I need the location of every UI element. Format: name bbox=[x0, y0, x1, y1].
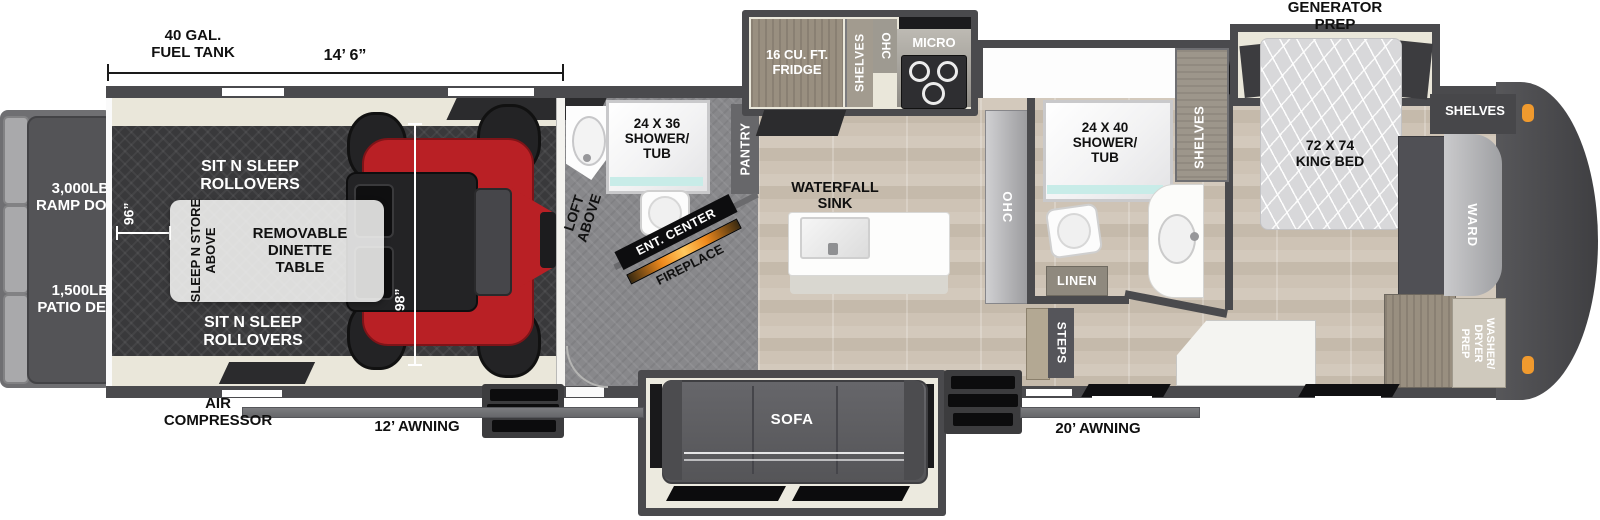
step bbox=[951, 376, 1015, 389]
loft-above-label: LOFT ABOVE bbox=[558, 180, 606, 252]
window bbox=[222, 88, 284, 96]
dimension-tick-left bbox=[107, 64, 109, 81]
garage-width-dimension-line bbox=[117, 232, 171, 234]
shower-glass bbox=[1047, 185, 1163, 194]
garage-height-label: 98” bbox=[388, 278, 412, 322]
range-hood-icon bbox=[899, 17, 971, 29]
kitchen-ohc: OHC bbox=[873, 19, 897, 73]
fuel-tank-label: 40 GAL. FUEL TANK bbox=[118, 28, 268, 62]
burner-icon bbox=[937, 61, 958, 82]
step bbox=[490, 389, 558, 401]
garage-height-dimension-line bbox=[414, 124, 416, 366]
sofa bbox=[662, 380, 928, 484]
sofa-back-line bbox=[684, 452, 904, 454]
wardrobe-label: WARD bbox=[1452, 190, 1492, 260]
window bbox=[1026, 389, 1072, 396]
faucet-icon bbox=[828, 243, 838, 255]
step bbox=[948, 394, 1018, 407]
bath-shelves-label: SHELVES bbox=[1175, 96, 1225, 178]
sofa-armrest bbox=[904, 380, 924, 480]
kitchen-shelves: SHELVES bbox=[845, 19, 873, 107]
faucet-icon bbox=[1190, 232, 1199, 241]
refrigerator: 16 CU. FT. FRIDGE bbox=[751, 19, 843, 107]
bedroom-dresser bbox=[1398, 136, 1450, 296]
kitchen-bath-wall bbox=[1027, 98, 1035, 304]
ramp-door-panel bbox=[27, 116, 114, 384]
awning-20ft bbox=[1020, 407, 1200, 418]
shower-24x36-label: 24 X 36 SHOWER/ TUB bbox=[612, 116, 702, 161]
sleep-n-store-label: SLEEP N STORE ABOVE bbox=[176, 203, 232, 299]
linen-cabinet: LINEN bbox=[1046, 266, 1108, 296]
garage-width-label: 96” bbox=[118, 198, 140, 230]
window bbox=[448, 88, 534, 96]
patio-rail-2 bbox=[3, 205, 29, 294]
floor-mat bbox=[666, 486, 786, 501]
dimension-tick bbox=[408, 123, 422, 125]
utv-bumper bbox=[540, 212, 556, 268]
window-sill bbox=[1315, 396, 1381, 401]
air-compressor-label: AIR COMPRESSOR bbox=[128, 396, 308, 430]
generator-prep-label: GENERATOR PREP bbox=[1260, 0, 1410, 34]
entry-steps bbox=[944, 370, 1022, 434]
removable-dinette-label: REMOVABLE DINETTE TABLE bbox=[232, 226, 368, 276]
sofa-back-line bbox=[684, 459, 904, 461]
entry-door-opening bbox=[566, 387, 604, 397]
marker-light-icon bbox=[1522, 356, 1534, 374]
bath-bottom-wall bbox=[1033, 296, 1129, 304]
shower-glass bbox=[610, 177, 703, 186]
washer-dryer-closet bbox=[1384, 294, 1456, 388]
microwave-label: MICRO bbox=[897, 36, 971, 51]
shower-24x40-label: 24 X 40 SHOWER/ TUB bbox=[1050, 120, 1160, 165]
ohc-counter: OHC bbox=[985, 110, 1029, 304]
sit-n-sleep-bottom-label: SIT N SLEEP ROLLOVERS bbox=[183, 314, 323, 350]
rv-floorplan: 40 GAL. FUEL TANK 14’ 6” 3,000LB. RAMP D… bbox=[0, 0, 1600, 520]
toilet-bowl-icon bbox=[1057, 213, 1091, 249]
washer-dryer-prep-label: WASHER/ DRYER PREP bbox=[1452, 302, 1504, 384]
pantry: PANTRY bbox=[731, 104, 759, 194]
king-bed-label: 72 X 74 KING BED bbox=[1270, 138, 1390, 169]
length-dimension-line bbox=[108, 72, 564, 74]
dimension-tick-right bbox=[562, 64, 564, 81]
roof-vent-icon bbox=[219, 362, 315, 384]
length-label: 14’ 6” bbox=[300, 47, 390, 65]
utv-windshield bbox=[474, 188, 512, 296]
sofa-armrest bbox=[662, 380, 682, 480]
steps: STEPS bbox=[1048, 308, 1074, 378]
dimension-tick bbox=[408, 364, 422, 366]
awning-12ft-label: 12’ AWNING bbox=[337, 419, 497, 436]
waterfall-sink-label: WATERFALL SINK bbox=[775, 180, 895, 212]
rear-opening bbox=[106, 98, 112, 386]
faucet-icon bbox=[583, 154, 591, 162]
fridge-doors bbox=[756, 110, 846, 136]
floor-mat bbox=[792, 486, 910, 501]
step bbox=[492, 420, 556, 432]
window-sill bbox=[1092, 396, 1152, 401]
slide-window bbox=[650, 384, 662, 468]
burner-icon bbox=[909, 61, 930, 82]
awning-20ft-label: 20’ AWNING bbox=[1018, 421, 1178, 438]
sofa-label: SOFA bbox=[722, 412, 862, 429]
sit-n-sleep-top-label: SIT N SLEEP ROLLOVERS bbox=[180, 158, 320, 194]
step bbox=[953, 413, 1013, 426]
king-bed bbox=[1260, 38, 1402, 230]
marker-light-icon bbox=[1522, 104, 1534, 122]
burner-icon bbox=[922, 82, 945, 105]
front-shelves-label: SHELVES bbox=[1436, 104, 1514, 119]
steps-base bbox=[1026, 308, 1050, 380]
